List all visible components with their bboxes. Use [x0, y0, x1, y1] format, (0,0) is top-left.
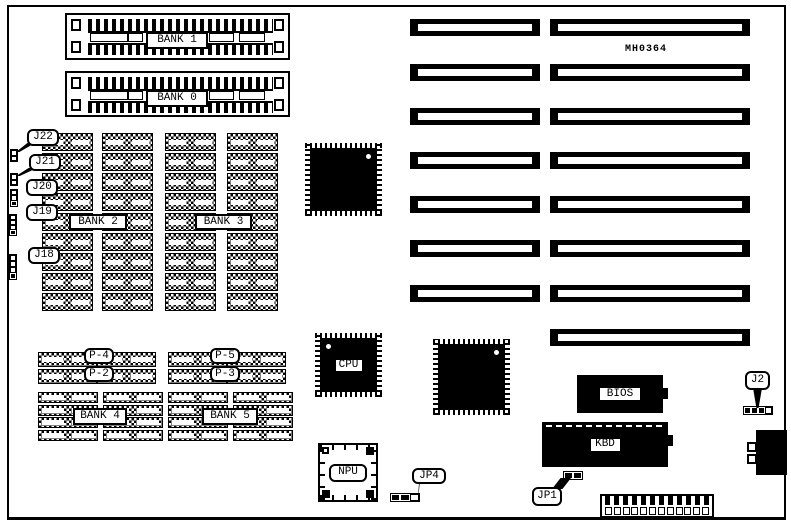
expansion-slot-long [550, 329, 750, 346]
power-pin [695, 497, 700, 505]
memory-chip [165, 293, 216, 311]
chip-chipset-2 [438, 344, 505, 410]
jumper-pins-j18 [9, 254, 17, 280]
expansion-slot-long [550, 19, 750, 36]
callout-j18: J18 [28, 247, 60, 264]
jumper-pins-j20 [10, 189, 18, 207]
label-p-5: P-5 [210, 348, 240, 364]
npu-label: NPU [329, 464, 367, 482]
simm-end-clip [274, 99, 284, 111]
simm-slot-bar [239, 33, 265, 42]
simm-slot-bar [209, 91, 234, 100]
jumper-pin [410, 494, 419, 501]
chip-kbd: KBD [542, 422, 668, 467]
simm-end-clip [71, 99, 81, 111]
memory-chip [168, 392, 228, 403]
memory-chip [165, 173, 216, 191]
power-socket [702, 507, 709, 515]
memory-chip [102, 133, 153, 151]
jumper-pin [744, 407, 751, 414]
memory-chip [103, 392, 163, 403]
power-pin [632, 497, 637, 505]
chip-label-bios: BIOS [598, 386, 642, 402]
keyboard-connector-pin [747, 442, 757, 452]
memory-chip [38, 430, 98, 441]
simm-end-clip [274, 77, 284, 89]
socket-corner [366, 447, 374, 455]
memory-chip [165, 153, 216, 171]
power-socket [658, 507, 665, 515]
power-pin-row [605, 497, 709, 505]
simm-slot-bar [239, 91, 265, 100]
callout-jp4: JP4 [412, 468, 446, 484]
socket-corner [322, 490, 330, 498]
jumper-pin [765, 407, 772, 414]
memory-chip [227, 133, 278, 151]
chip-notch [663, 388, 668, 399]
chip-cpu: CPU [320, 338, 377, 392]
callout-j22: J22 [27, 129, 59, 146]
power-socket [631, 507, 638, 515]
pin1-index-dot [494, 350, 499, 355]
power-pin [659, 497, 664, 505]
power-pin [677, 497, 682, 505]
power-pin [605, 497, 610, 505]
chip-label-kbd: KBD [589, 437, 622, 453]
jumper-pin [751, 407, 758, 414]
power-socket [605, 507, 612, 515]
simm-slot-bar [90, 33, 128, 42]
memory-chip [42, 293, 93, 311]
jumper-pin [391, 494, 400, 501]
expansion-slot-short [410, 19, 540, 36]
callout-j20: J20 [26, 179, 58, 196]
label-bank-4: BANK 4 [73, 408, 127, 425]
jumper-pins-j21 [10, 173, 18, 186]
callout-j19: J19 [26, 204, 58, 221]
pin1-index-dot [366, 154, 371, 159]
memory-chip [102, 293, 153, 311]
jumper-pin [10, 230, 16, 235]
simm-end-clip [71, 19, 81, 31]
expansion-slot-long [550, 108, 750, 125]
pin1-index-dot [326, 344, 331, 349]
jumper-pins-jp4 [390, 493, 420, 502]
simm-slot-bar [209, 33, 234, 42]
simm-end-clip [71, 77, 81, 89]
expansion-slot-short [410, 285, 540, 302]
simm-socket-bank-1: BANK 1 [65, 13, 290, 60]
power-socket [676, 507, 683, 515]
memory-chip [227, 153, 278, 171]
power-pin [650, 497, 655, 505]
chip-notch [668, 435, 673, 446]
power-pin [614, 497, 619, 505]
simm-slot-bar [90, 91, 128, 100]
memory-chip [165, 133, 216, 151]
keyboard-connector-pin [747, 454, 757, 464]
expansion-slot-short [410, 108, 540, 125]
power-pin [641, 497, 646, 505]
label-bank-3: BANK 3 [195, 214, 252, 230]
memory-chip [102, 193, 153, 211]
jumper-pins-j19 [9, 214, 17, 236]
memory-chip [227, 253, 278, 271]
motherboard-diagram: MH0364 BANK 1BANK 0BANK 2BANK 3P-4P-2P-5… [0, 0, 791, 527]
power-socket [693, 507, 700, 515]
memory-chip [168, 430, 228, 441]
power-socket [684, 507, 691, 515]
memory-chip [165, 233, 216, 251]
simm-socket-bank-0: BANK 0 [65, 71, 290, 117]
jumper-pin [10, 273, 16, 279]
memory-chip [227, 233, 278, 251]
chip-label-cpu: CPU [334, 358, 364, 373]
simm-end-clip [274, 19, 284, 31]
power-socket [649, 507, 656, 515]
jumper-pin [11, 156, 17, 162]
power-pin [668, 497, 673, 505]
expansion-slot-short [410, 240, 540, 257]
callout-jp1: JP1 [532, 487, 562, 506]
label-bank-2: BANK 2 [69, 214, 127, 230]
memory-chip [102, 253, 153, 271]
memory-chip [227, 293, 278, 311]
jumper-pin [11, 180, 17, 186]
board-code: MH0364 [625, 44, 667, 55]
power-socket [623, 507, 630, 515]
callout-j2: J2 [745, 371, 770, 390]
simm-pin-row [88, 19, 273, 33]
chip-bios: BIOS [577, 375, 663, 413]
jumper-pins-j22 [10, 149, 18, 162]
memory-chip [165, 253, 216, 271]
power-pin [704, 497, 709, 505]
simm-pin-row [88, 77, 273, 91]
memory-chip [233, 430, 293, 441]
simm-end-clip [274, 41, 284, 53]
expansion-slot-long [550, 64, 750, 81]
memory-chip [102, 233, 153, 251]
label-p-4: P-4 [84, 348, 114, 364]
expansion-slot-long [550, 240, 750, 257]
memory-chip [227, 273, 278, 291]
npu-socket: NPU [318, 443, 378, 502]
power-connector [600, 494, 714, 518]
socket-corner [322, 447, 329, 454]
memory-chip [165, 273, 216, 291]
simm-slot-bar [128, 91, 143, 100]
power-socket [614, 507, 621, 515]
memory-chip [227, 193, 278, 211]
power-socket-row [605, 507, 709, 515]
simm-slot-bar [128, 33, 143, 42]
socket-corner [366, 490, 374, 498]
jumper-pin [11, 201, 17, 206]
expansion-slot-short [410, 64, 540, 81]
memory-chip [42, 273, 93, 291]
jumper-pin [564, 472, 573, 479]
callout-j21: J21 [29, 154, 61, 171]
power-socket [640, 507, 647, 515]
label-p-2: P-2 [84, 366, 114, 382]
memory-chip [103, 430, 163, 441]
simm-bank-label: BANK 1 [146, 32, 208, 49]
label-bank-5: BANK 5 [202, 408, 258, 425]
simm-end-clip [71, 41, 81, 53]
memory-chip [165, 193, 216, 211]
memory-chip [102, 173, 153, 191]
expansion-slot-long [550, 285, 750, 302]
memory-chip [233, 392, 293, 403]
memory-chip [102, 153, 153, 171]
expansion-slot-long [550, 196, 750, 213]
memory-chip [102, 273, 153, 291]
jumper-pin [573, 472, 582, 479]
label-p-3: P-3 [210, 366, 240, 382]
jumper-pin [758, 407, 765, 414]
chip-chipset-1 [310, 148, 377, 211]
memory-chip [227, 173, 278, 191]
expansion-slot-short [410, 152, 540, 169]
power-pin [623, 497, 628, 505]
jumper-pin [400, 494, 409, 501]
keyboard-connector [756, 430, 787, 475]
memory-chip [38, 392, 98, 403]
expansion-slot-long [550, 152, 750, 169]
simm-bank-label: BANK 0 [146, 90, 208, 107]
power-socket [667, 507, 674, 515]
power-pin [686, 497, 691, 505]
expansion-slot-short [410, 196, 540, 213]
